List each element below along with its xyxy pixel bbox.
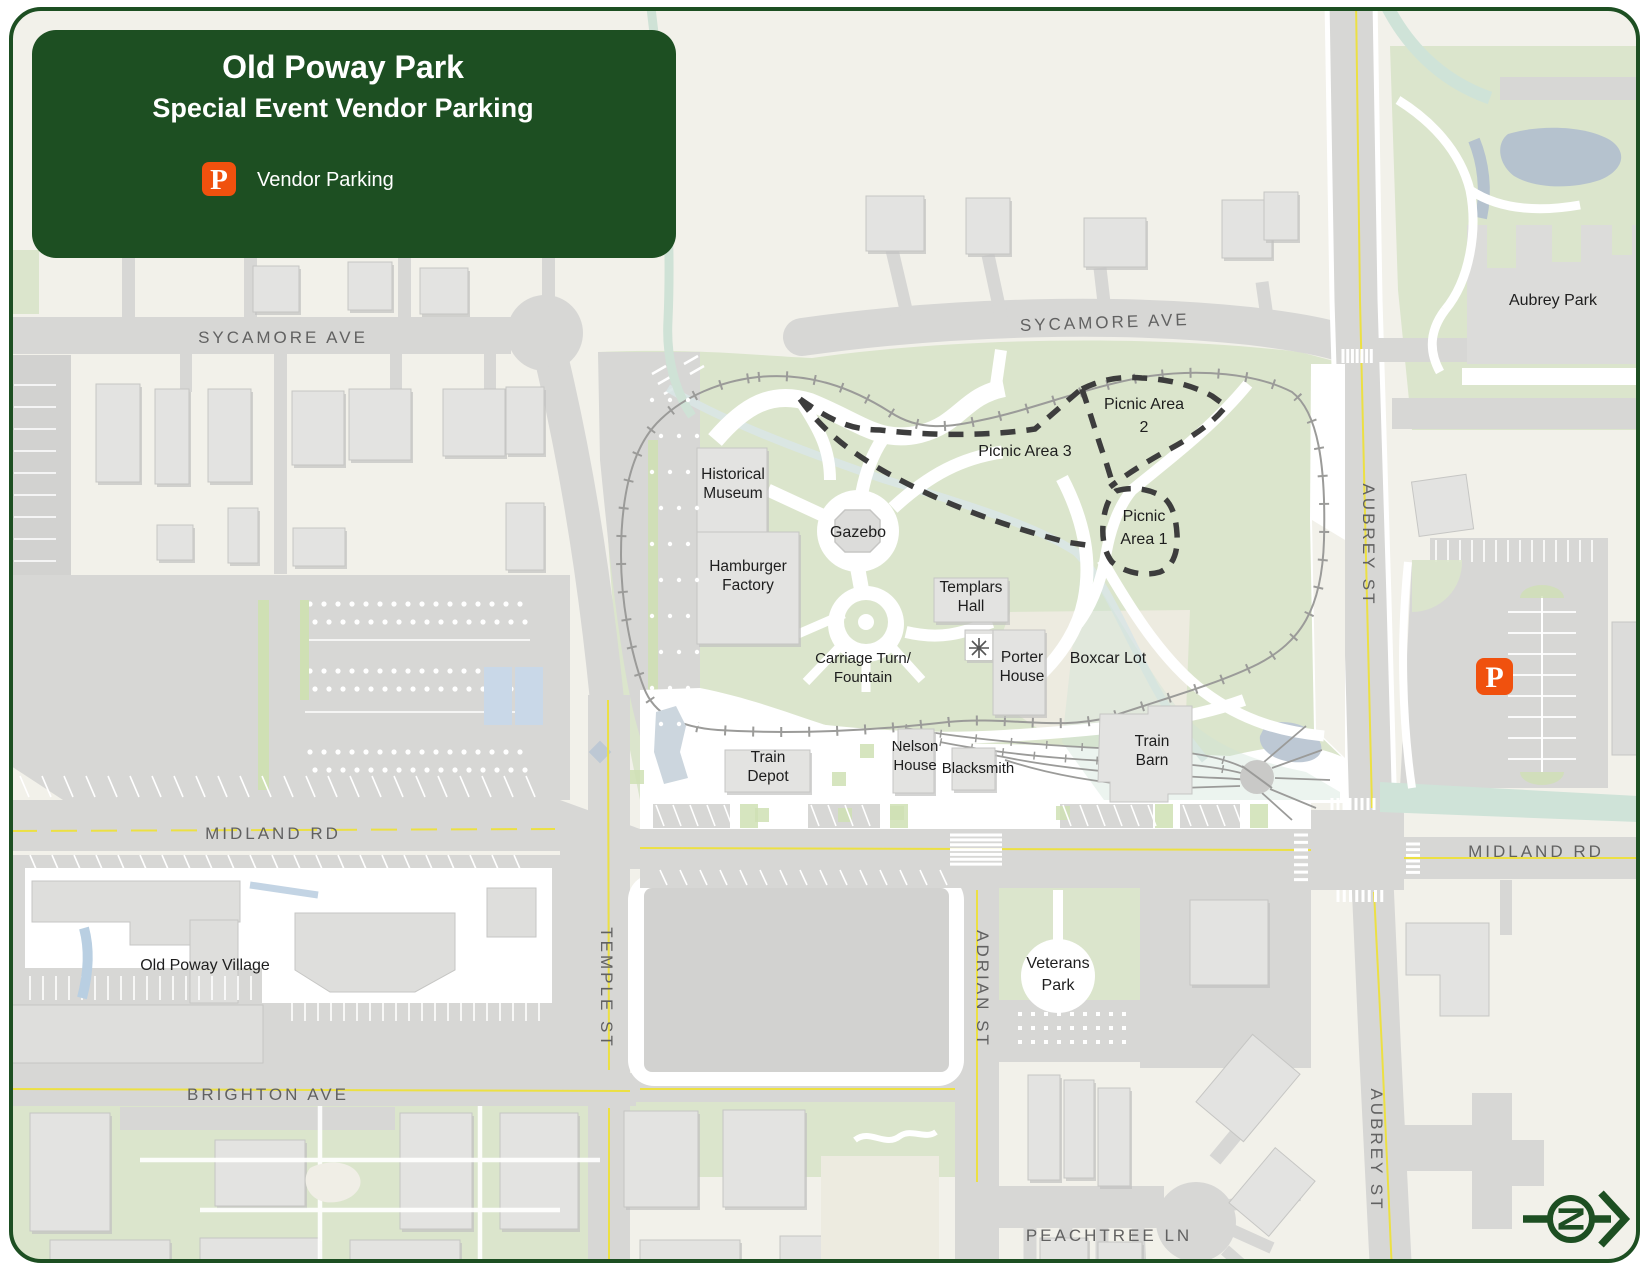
svg-text:P: P [1485, 661, 1503, 694]
svg-text:Vendor Parking: Vendor Parking [257, 169, 394, 191]
svg-text:ADRIAN ST: ADRIAN ST [973, 930, 992, 1048]
svg-text:BRIGHTON AVE: BRIGHTON AVE [187, 1085, 349, 1104]
svg-text:Old Poway Village: Old Poway Village [140, 957, 270, 974]
svg-text:Blacksmith: Blacksmith [942, 760, 1015, 777]
svg-text:PEACHTREE LN: PEACHTREE LN [1026, 1226, 1192, 1245]
svg-text:Aubrey Park: Aubrey Park [1509, 292, 1598, 309]
svg-text:Picnic Area 3: Picnic Area 3 [978, 443, 1071, 460]
svg-text:AUBREY ST: AUBREY ST [1359, 483, 1378, 606]
svg-text:P: P [210, 164, 228, 196]
svg-text:SYCAMORE AVE: SYCAMORE AVE [198, 328, 368, 347]
svg-text:Boxcar Lot: Boxcar Lot [1070, 650, 1147, 667]
svg-text:MIDLAND RD: MIDLAND RD [205, 824, 341, 843]
svg-text:AUBREY ST: AUBREY ST [1367, 1088, 1386, 1211]
svg-text:N: N [1551, 1206, 1592, 1232]
svg-text:Gazebo: Gazebo [830, 524, 886, 541]
svg-text:Special Event Vendor Parking: Special Event Vendor Parking [152, 93, 533, 123]
svg-text:MIDLAND RD: MIDLAND RD [1468, 842, 1604, 861]
svg-text:Old Poway Park: Old Poway Park [222, 49, 464, 85]
svg-text:TEMPLE ST: TEMPLE ST [597, 927, 616, 1048]
